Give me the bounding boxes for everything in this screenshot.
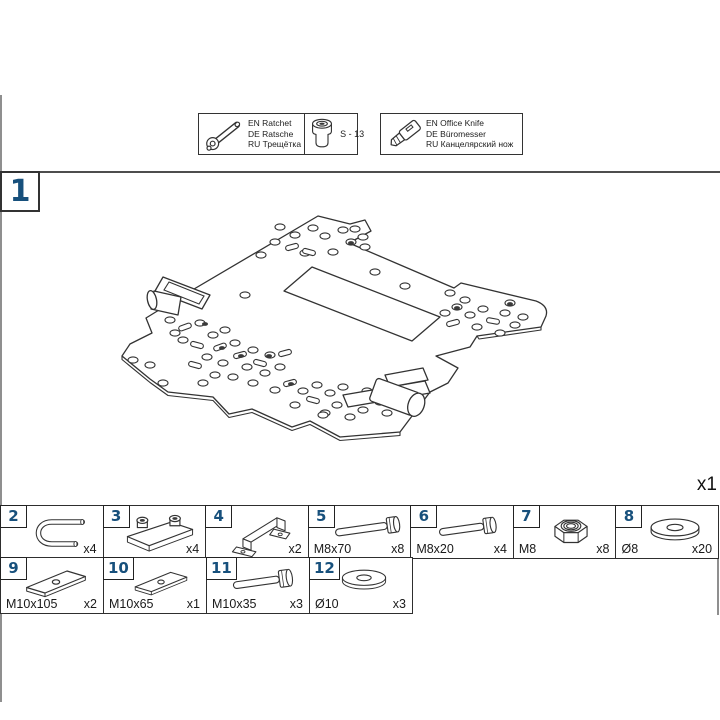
tool-line: DE Ratsche [248,129,301,140]
part-size-label: M8 [519,542,536,556]
part-size-label: M10x65 [109,597,153,611]
socket-size-label: S - 13 [340,129,364,139]
step-number-box: 1 [0,171,40,212]
part-quantity: x4 [83,542,96,556]
part-quantity: x20 [692,542,712,556]
tool-line: RU Трещётка [248,139,301,150]
tool-line: RU Канцелярский нож [426,139,513,150]
part-number-badge: 4 [205,505,232,528]
lock-nut-icon [546,509,596,556]
u-bolt-icon [23,513,89,558]
tool-line: EN Office Knife [426,118,513,129]
part-cell-8: 8 Ø8 x20 [615,506,718,558]
part-cell-11: 11 M10x35 x3 [206,558,309,613]
knife-section: EN Office Knife DE Büromesser RU Канцеля… [381,114,516,154]
part-cell-3: 3 x4 [103,506,206,558]
part-quantity: x3 [290,597,303,611]
baseplate-drawing [55,193,625,455]
part-cell-2: 2 x4 [1,506,103,558]
part-size-label: Ø10 [315,597,339,611]
tool-line: EN Ratchet [248,118,301,129]
tool-line: DE Büromesser [426,129,513,140]
ratchet-section: EN Ratchet DE Ratsche RU Трещётка [199,114,304,154]
tool-box-ratchet: EN Ratchet DE Ratsche RU Трещётка S - 13 [198,113,358,155]
ratchet-icon [204,116,246,152]
step-number: 1 [10,174,31,209]
socket-section: S - 13 [304,114,367,154]
part-number-badge: 8 [615,505,642,528]
part-cell-7: 7 M8 x8 [513,506,616,558]
part-size-label: M10x35 [212,597,256,611]
part-cell-4: 4 x2 [205,506,308,558]
part-quantity: x4 [186,542,199,556]
part-quantity: x3 [393,597,406,611]
part-number-badge: 7 [513,505,540,528]
office-knife-icon [386,115,424,153]
part-quantity: x1 [187,597,200,611]
part-quantity: x8 [391,542,404,556]
part-cell-12: 12 Ø10 x3 [309,558,412,613]
tool-box-knife: EN Office Knife DE Büromesser RU Канцеля… [380,113,523,155]
part-quantity: x8 [596,542,609,556]
part-cell-10: 10 M10x65 x1 [103,558,206,613]
section-divider-line [0,171,720,173]
part-cell-5: 5 M8x70 x8 [308,506,411,558]
part-quantity: x2 [289,542,302,556]
part-size-label: M8x70 [314,542,352,556]
main-part-quantity: x1 [697,474,717,496]
part-quantity: x2 [84,597,97,611]
hex-bolt-icon [229,566,303,601]
parts-table-row-1: 2 x4 3 [0,505,719,559]
part-number-badge: 6 [410,505,437,528]
part-number-badge: 10 [103,557,134,580]
washer-icon [336,566,392,601]
part-cell-6: 6 M8x20 x4 [410,506,513,558]
socket-icon [310,117,334,151]
part-quantity: x4 [494,542,507,556]
part-cell-9: 9 M10x105 x2 [1,558,103,613]
instruction-sheet: EN Ratchet DE Ratsche RU Трещётка S - 13 [0,0,720,720]
part-size-label: Ø8 [621,542,638,556]
parts-table-row-2: 9 M10x105 x2 10 M10x65 x1 [0,557,413,614]
part-size-label: M10x105 [6,597,57,611]
part-size-label: M8x20 [416,542,454,556]
